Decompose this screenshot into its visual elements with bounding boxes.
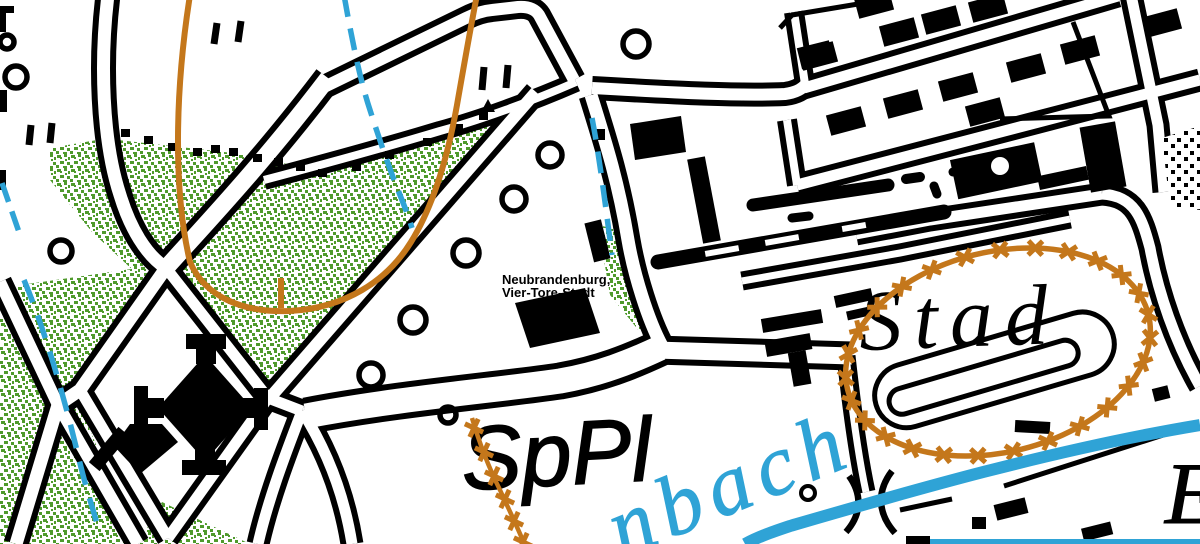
svg-text:E: E <box>1163 446 1200 543</box>
svg-text:Vier-Tore-Stadt: Vier-Tore-Stadt <box>502 285 595 300</box>
svg-text:Stad: Stad <box>857 266 1061 369</box>
